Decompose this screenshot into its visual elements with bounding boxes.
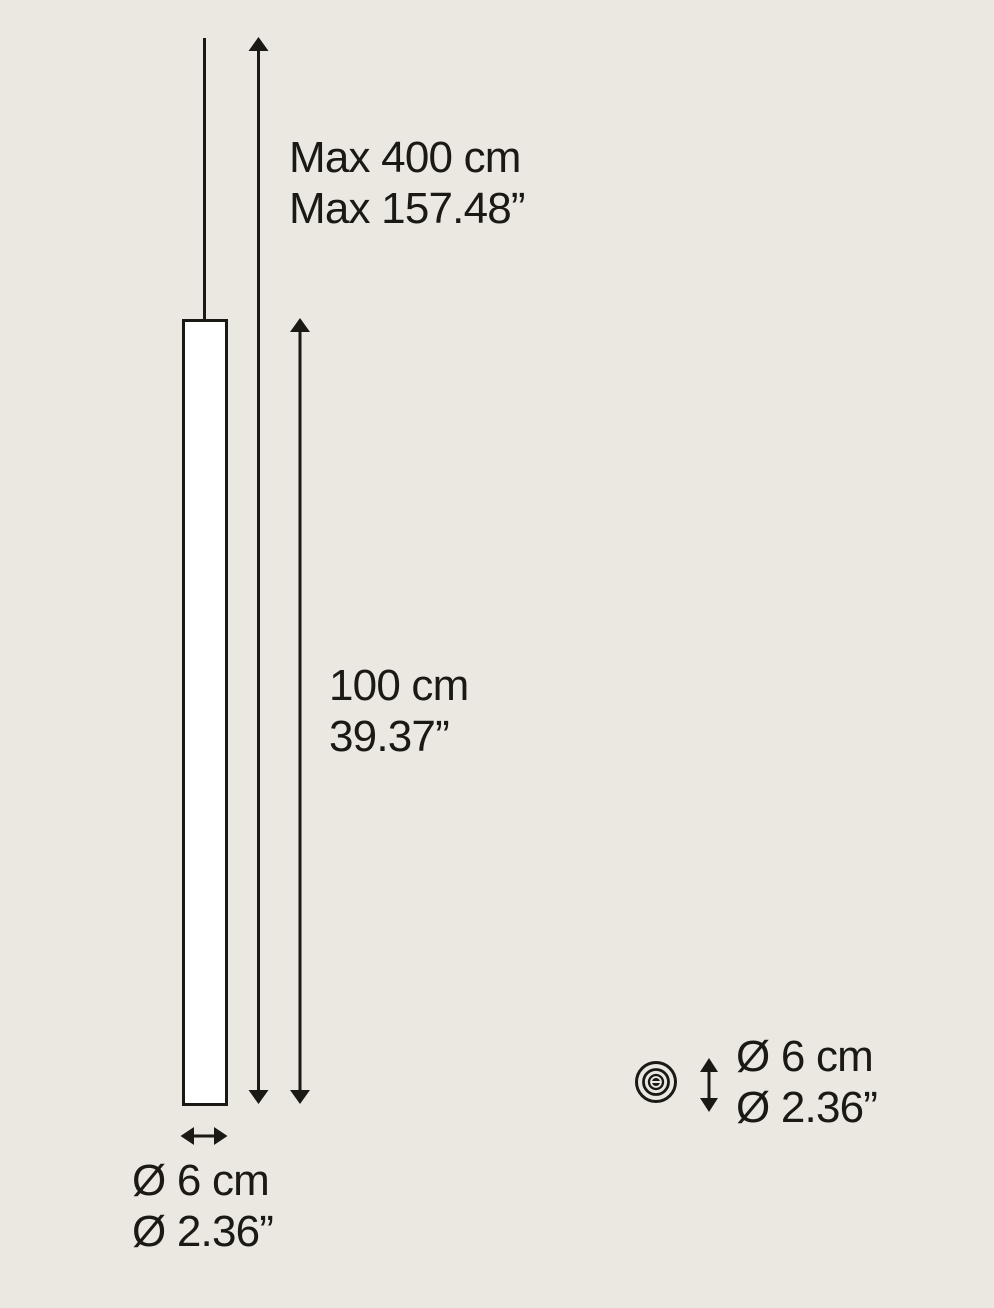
dimension-diagram: Max 400 cm Max 157.48” 100 cm 39.37” Ø 6… [0,0,994,1308]
body-diameter-arrow [181,1127,228,1145]
label-body-height-inches: 39.37” [329,711,469,762]
label-top-view-diameter-inches: Ø 2.36” [736,1082,877,1133]
label-body-diameter-inches: Ø 2.36” [132,1206,273,1257]
concentric-circles-icon [637,1063,676,1102]
label-top-view-diameter-cm: Ø 6 cm [736,1031,877,1082]
label-top-view-diameter: Ø 6 cm Ø 2.36” [736,1031,877,1133]
label-body-height-cm: 100 cm [329,660,469,711]
label-max-suspension-cm: Max 400 cm [289,132,525,183]
label-body-height: 100 cm 39.37” [329,660,469,762]
label-body-diameter-cm: Ø 6 cm [132,1155,273,1206]
top-view-diameter-arrow [700,1058,718,1112]
pendant-tube [184,321,227,1105]
max-height-arrow [249,37,269,1104]
label-body-diameter: Ø 6 cm Ø 2.36” [132,1155,273,1257]
label-max-suspension-inches: Max 157.48” [289,183,525,234]
body-height-arrow [290,318,310,1104]
label-max-suspension: Max 400 cm Max 157.48” [289,132,525,234]
